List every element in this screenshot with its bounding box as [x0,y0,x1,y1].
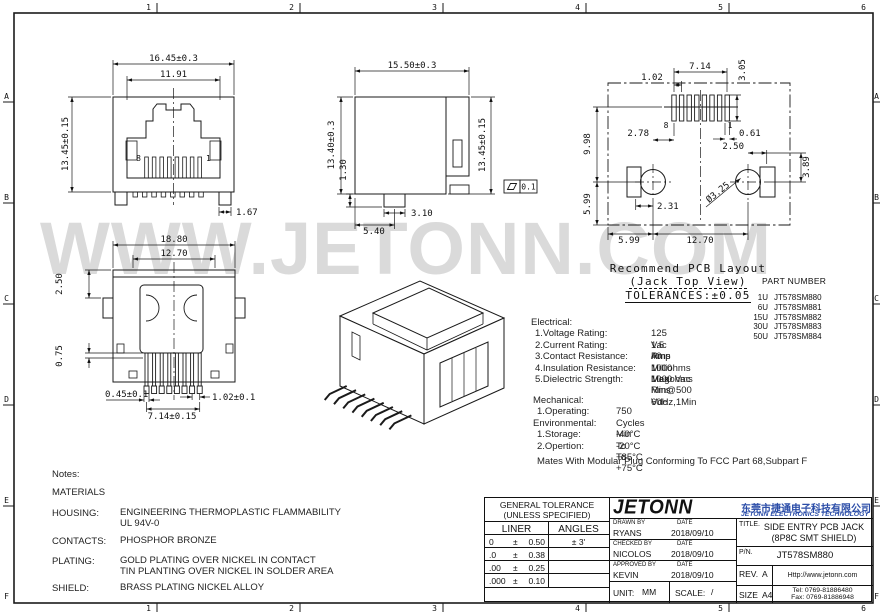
mechanical-title: Mechanical: [533,395,596,406]
tolerance-digits: .00 [489,563,501,573]
material-value-line2: UL 94V-0 [120,518,159,529]
frame-col-label: 2 [289,3,294,12]
part-number-item: 1UJT578SM880 [734,293,822,303]
frame-row-label: A [874,92,879,101]
dim-side-depth: 15.50±0.3 [388,61,437,71]
part-number: JT578SM883 [774,322,822,332]
tolerance-digits: .000 [489,576,506,586]
material-value: ENGINEERING THERMOPLASTIC FLAMMABILITYUL… [120,508,450,529]
plating-code: 50U [734,332,768,342]
flatness-value: 0.1 [521,183,536,192]
part-number-list: 1UJT578SM880 6UJT578SM881 15UJT578SM882 … [734,293,822,342]
part-number-item: 50UJT578SM884 [734,332,822,342]
frame-row-label: E [874,496,879,505]
plating-code: 1U [734,293,768,303]
material-label: HOUSING: [52,508,99,519]
drawing-title-line2: (8P8C SMT SHIELD) [755,533,873,543]
spec-row: 1.Storage:-40°C To +85°C [533,429,596,440]
dim-pcb-pad-length: 3.05 [738,59,748,81]
tolerance-value: 0.38 [521,550,545,560]
checked-by-label: CHECKED BY [613,541,652,547]
side-view: 15.50±0.3 13.40±0.3 1.30 3.10 5.40 13.45… [327,61,537,237]
dim-pcb-edge-left: 5.99 [583,193,593,215]
tolerance-digits: .0 [489,550,496,560]
plating-code: 6U [734,303,768,313]
frame-col-label: 4 [575,3,580,12]
material-value: BRASS PLATING NICKEL ALLOY [120,583,450,594]
general-tolerance-line2: (UNLESS SPECIFIED) [485,510,609,520]
bottom-view: 18.80 12.70 2.50 0.75 0.45±0.1 1.02±0.1 … [55,235,255,422]
mates-note: Mates With Modular Plug Conforming To FC… [537,456,807,467]
part-number-item: 15UJT578SM882 [734,313,822,323]
material-label: PLATING: [52,556,95,567]
spec-row: 2.Current Rating:1.5 Amp [531,340,636,351]
pn-label: P/N. [739,549,753,556]
part-number: JT578SM884 [774,332,822,342]
tel: Tel: 0769-81886480 [774,587,871,594]
size-value: A4 [762,590,772,600]
frame-col-label: 4 [575,604,580,613]
unit-label: UNIT: [613,588,634,598]
spec-label: 2.Opertion: [537,441,584,452]
plus-minus: ± [513,563,518,573]
front-view: 16.45±0.3 11.91 13.45±0.15 1.67 8 1 [61,54,258,218]
frame-row-label: C [4,294,9,303]
liner-column-header: LINER [485,524,548,535]
rev-value: A [762,569,768,579]
unit-value: MM [642,587,656,597]
fax: Fax: 0769-81886948 [774,594,871,601]
frame-row-label: D [4,395,9,404]
dim-pcb-pads-to-holes: 9.98 [583,133,593,155]
spec-label: 1.Storage: [537,429,581,440]
jetonn-logo: JETONN [613,496,693,519]
part-number-item: 30UJT578SM883 [734,322,822,332]
scale-label: SCALE: [675,588,705,598]
spec-row: 1.Operating:750 Cycles Min [533,406,596,417]
frame-row-label: F [874,592,879,601]
spec-label: 1.Voltage Rating: [535,328,607,339]
spec-value: 1000 Vac Rms 60Hz,1Min [651,374,696,408]
frame-row-label: E [4,496,9,505]
approved-by-label: APPROVED BY [613,562,656,568]
pn-value: JT578SM880 [755,550,855,561]
approved-date: 2018/09/10 [671,570,714,580]
spec-label: 3.Contact Resistance: [535,351,628,362]
dim-pcb-tab-width: 2.31 [657,202,679,212]
pin8-label: 8 [664,121,669,130]
tolerance-digits: 0 [489,537,494,547]
frame-col-label: 1 [146,3,151,12]
title-block: GENERAL TOLERANCE (UNLESS SPECIFIED) LIN… [484,497,872,602]
material-label: CONTACTS: [52,536,106,547]
general-tolerance-line1: GENERAL TOLERANCE [485,500,609,510]
pcb-layout-view: 7.14 1.02 3.05 9.98 5.99 2.78 0.61 2.50 … [583,59,812,246]
dim-bottom-pin-depth: 0.75 [55,345,65,367]
tolerance-value: 0.25 [521,563,545,573]
dim-pcb-hole-span: 12.70 [686,236,713,246]
drawing-sheet: WWW.JETONN.COM 1 2 3 4 5 6 1 [0,0,880,613]
frame-col-label: 6 [861,3,866,12]
material-value: PHOSPHOR BRONZE [120,536,450,547]
pin1-label: 1 [206,154,211,163]
dim-side-post-offset: 5.40 [363,227,385,237]
electrical-title: Electrical: [531,317,636,328]
frame-row-label: C [874,294,879,303]
pcb-note-line3: TOLERANCES:±0.05 [625,289,750,303]
approved-by-name: KEVIN [613,570,639,580]
spec-label: 1.Operating: [537,406,589,417]
dim-bottom-pin-span: 7.14±0.15 [148,412,197,422]
drawing-title-line1: SIDE ENTRY PCB JACK [755,522,873,532]
material-value: GOLD PLATING OVER NICKEL IN CONTACTTIN P… [120,556,450,577]
plating-code: 15U [734,313,768,323]
notes-title: Notes: [52,469,79,480]
checked-date: 2018/09/10 [671,549,714,559]
dim-front-foot: 1.67 [236,208,258,218]
website: Http://www.jetonn.com [774,572,871,579]
frame-col-label: 3 [432,604,437,613]
rev-label: REV. [739,569,758,579]
dim-pcb-bottom-left: 5.99 [618,236,640,246]
frame-row-label: D [874,395,879,404]
frame-row-label: A [4,92,9,101]
spec-row: 3.Contact Resistance:40 Milliohms Max [531,351,636,362]
frame-col-label: 1 [146,604,151,613]
plus-minus: ± [513,537,518,547]
mechanical-environmental-specs: Mechanical: 1.Operating:750 Cycles Min E… [533,395,596,452]
pin8-label: 8 [136,154,141,163]
frame-row-label: F [4,592,9,601]
part-number-item: 6UJT578SM881 [734,303,822,313]
date-label: DATE [677,562,693,568]
general-tolerance-header: GENERAL TOLERANCE (UNLESS SPECIFIED) [485,500,609,520]
scale-value: / [711,587,713,597]
dim-bottom-top-offset: 2.50 [55,273,65,295]
pcb-note-line2: (Jack Top View) [629,275,746,289]
spec-row: 1.Voltage Rating:125 Vac Rms [531,328,636,339]
spec-row: 5.Dielectric Strength:1000 Vac Rms 60Hz,… [531,374,636,385]
pin1-label: 1 [728,121,733,130]
spec-label: 4.Insulation Resistance: [535,363,636,374]
dim-bottom-inner-width: 12.70 [160,249,187,259]
dim-bottom-pin-width: 0.45±0.1 [105,390,148,400]
drawn-date: 2018/09/10 [671,528,714,538]
electrical-specs: Electrical: 1.Voltage Rating:125 Vac Rms… [531,317,636,385]
plus-minus: ± [513,550,518,560]
company-name-en: JETONN ELECTRONICS TECHNOLOGY [741,511,869,518]
dim-side-standoff: 1.30 [339,159,349,181]
dim-pcb-hole-dia: Ø3.25 [704,180,732,206]
dim-side-height-left: 13.40±0.3 [327,121,337,170]
dim-side-post-width: 3.10 [411,209,433,219]
frame-col-label: 3 [432,3,437,12]
frame-row-label: B [874,193,879,202]
plus-minus: ± [513,576,518,586]
frame-col-label: 5 [718,3,723,12]
plating-code: 30U [734,322,768,332]
tolerance-value: 0.50 [521,537,545,547]
size-label: SIZE [739,590,758,600]
angles-column-header: ANGLES [548,524,609,535]
material-value-line2: TIN PLANTING OVER NICKEL IN SOLDER AREA [120,566,333,577]
dim-pcb-hole-offset-left: 2.78 [627,129,649,139]
flatness-symbol-icon [508,184,517,190]
dim-front-opening: 11.91 [160,70,187,80]
dim-bottom-width: 18.80 [160,235,187,245]
frame-col-label: 5 [718,604,723,613]
part-number-heading: PART NUMBER [762,276,826,286]
material-label: SHIELD: [52,583,89,594]
pcb-note-line1: Recommend PCB Layout [596,262,780,275]
dim-side-height-right: 13.45±0.15 [478,118,488,172]
spec-row: 2.Opertion:-20°C To +75°C [533,441,596,452]
material-value-line1: ENGINEERING THERMOPLASTIC FLAMMABILITY [120,507,341,518]
part-number: JT578SM882 [774,313,822,323]
frame-row-label: B [4,193,9,202]
frame-col-label: 6 [861,604,866,613]
part-number: JT578SM881 [774,303,822,313]
dim-pcb-tab-height: 3.89 [802,156,812,178]
drawn-by-name: RYANS [613,528,642,538]
frame-col-label: 2 [289,604,294,613]
date-label: DATE [677,520,693,526]
materials-heading: MATERIALS [52,487,105,498]
dim-pcb-hole-offset-right: 2.50 [722,142,744,152]
dim-pcb-pad-width: 0.61 [739,129,761,139]
dim-pcb-pad-pitch: 1.02 [641,73,663,83]
spec-row: 4.Insulation Resistance:1000 Megohms Min… [531,363,636,374]
dim-front-height: 13.45±0.15 [61,117,71,171]
date-label: DATE [677,541,693,547]
angle-tolerance-value: ± 3' [548,537,609,547]
drawn-by-label: DRAWN BY [613,520,645,526]
checked-by-name: NICOLOS [613,549,651,559]
material-value-line1: GOLD PLATING OVER NICKEL IN CONTACT [120,555,316,566]
dim-bottom-pin-pitch: 1.02±0.1 [212,393,255,403]
spec-label: 2.Current Rating: [535,340,607,351]
tolerance-value: 0.10 [521,576,545,586]
environmental-title: Environmental: [533,418,596,429]
spec-label: 5.Dielectric Strength: [535,374,623,385]
isometric-view [325,281,504,429]
part-number: JT578SM880 [774,293,822,303]
dim-front-width: 16.45±0.3 [149,54,198,64]
dim-pcb-pad-span: 7.14 [689,62,711,72]
